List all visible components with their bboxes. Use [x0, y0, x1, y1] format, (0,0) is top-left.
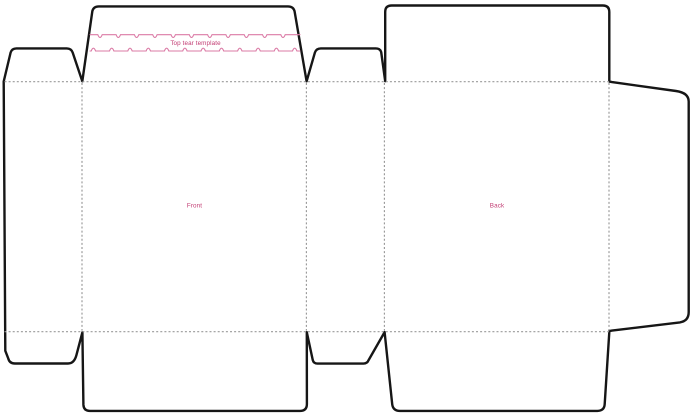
canvas-background — [0, 0, 700, 420]
back-panel-label: Back — [490, 203, 505, 210]
tear-strip-label: Top tear template — [170, 40, 221, 47]
dieline-template: Top tear template Front Back — [0, 0, 700, 420]
front-panel-label: Front — [187, 203, 202, 210]
dieline-canvas: Top tear template Front Back — [0, 0, 700, 420]
